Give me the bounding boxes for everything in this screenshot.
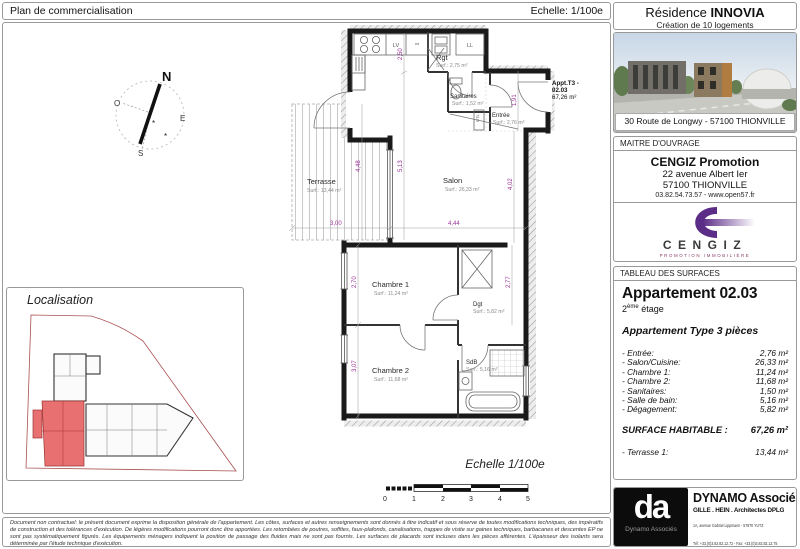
dim-448: 4,48: [356, 160, 362, 172]
scale-bar: Echelle 1/100e 0 1 2 3 4 5: [383, 457, 545, 503]
room-surf-terrasse: Surf.: 13,44 m²: [307, 188, 342, 194]
architect-address: 1A, avenue Gabriel Lippmann - 57970 YUTZ: [693, 523, 763, 529]
dishwasher-label: LV: [393, 43, 400, 49]
surfaces-table-box: TABLEAU DES SURFACES Appartement 02.03 2…: [613, 266, 797, 480]
scale-bar-title: Echelle 1/100e: [465, 457, 545, 471]
compass-n: N: [162, 69, 171, 84]
terrace-label: - Terrasse 1:: [622, 447, 668, 457]
room-label-sdb: SdB: [466, 360, 477, 366]
room-surf-salon: Surf.: 26,33 m²: [445, 187, 480, 193]
apartment-type: Appartement Type 3 pièces: [622, 325, 788, 337]
scale-tick-5: 5: [526, 496, 530, 503]
washer-label: LL: [467, 43, 473, 49]
surface-row-label: - Dégagement:: [622, 405, 677, 414]
maitre-ouvrage-label: MAITRE D'OUVRAGE: [614, 137, 796, 151]
surface-total-label: SURFACE HABITABLE :: [622, 425, 728, 435]
terrace-value: 13,44 m²: [755, 447, 788, 457]
room-label-sanitaires: Sanitaires: [450, 94, 477, 100]
apartment-tag: Appt.T3 - 02.03 67,26 m²: [552, 80, 579, 101]
company-name: CENGIZ Promotion: [616, 155, 794, 169]
legal-disclaimer: Document non contractuel: le présent doc…: [2, 517, 611, 547]
room-surface-list: - Entrée:2,76 m² - Salon/Cuisine:26,33 m…: [622, 349, 788, 415]
surface-total-row: SURFACE HABITABLE : 67,26 m²: [622, 425, 788, 435]
cengiz-logo: CENGIZ PROMOTION IMMOBILIÈRE: [614, 203, 796, 261]
room-surf-dgt: Surf.: 5,82 m²: [473, 309, 505, 315]
compass-o: O: [114, 99, 120, 108]
room-label-rgt: Rgt: [436, 53, 449, 62]
apartment-tag-line1: Appt.T3 -: [552, 80, 579, 87]
room-label-chambre2: Chambre 2: [372, 366, 409, 375]
surface-row-value: 5,82 m²: [760, 405, 788, 414]
cengiz-logo-text: CENGIZ: [663, 238, 747, 252]
floor-ordinal: ème: [627, 304, 639, 310]
architect-box: da Dynamo Associés DYNAMO Associés GILLE…: [613, 487, 797, 547]
residence-subtitle: Création de 10 logements: [614, 20, 796, 30]
surfaces-table-label: TABLEAU DES SURFACES: [614, 267, 796, 281]
residence-photo-box: 30 Route de Longwy - 57100 THIONVILLE: [613, 32, 797, 133]
dim-250: 2,50: [398, 48, 404, 60]
floor-word: étage: [639, 304, 664, 314]
company-contact: 03.82.54.73.57 - www.open57.fr: [616, 192, 794, 199]
room-surf-chambre2: Surf.: 11,68 m²: [374, 377, 408, 383]
apartment-tag-line2: 02.03: [552, 87, 568, 94]
residence-name: Résidence INNOVIA: [614, 5, 796, 20]
scale-tick-1: 1: [412, 496, 416, 503]
architect-phones: Tél: +33.(0)3.82.82.12.72 - Fax: +33.(0)…: [693, 541, 777, 547]
dim-513: 5,13: [398, 160, 404, 172]
apartment-title: Appartement 02.03: [622, 285, 788, 303]
dynamo-logo: da Dynamo Associés: [614, 488, 688, 546]
apartment-tag-line3: 67,26 m²: [552, 94, 576, 101]
compass-star-1: *: [152, 119, 155, 128]
residence-header: Résidence INNOVIA Création de 10 logemen…: [613, 2, 797, 30]
dim-270: 2,70: [352, 276, 358, 288]
architect-name: DYNAMO Associés: [693, 491, 795, 505]
room-label-terrasse: Terrasse: [307, 177, 336, 186]
dim-307: 3,07: [352, 360, 358, 372]
legal-text: Document non contractuel: le présent doc…: [10, 520, 603, 547]
terrace-row: - Terrasse 1: 13,44 m²: [622, 447, 788, 457]
residence-address: 30 Route de Longwy - 57100 THIONVILLE: [615, 113, 795, 131]
dim-277: 2,77: [506, 276, 512, 288]
highlighted-apartment: [33, 401, 84, 466]
compass-e: E: [180, 114, 185, 123]
dim-191: 1,91: [512, 94, 518, 106]
residence-name-prefix: Résidence: [645, 5, 710, 20]
room-surf-entree: Surf.: 2,76 m²: [493, 120, 525, 126]
room-label-chambre1: Chambre 1: [372, 280, 409, 289]
localisation-box: Localisation: [6, 287, 244, 481]
surface-total-value: 67,26 m²: [751, 425, 788, 435]
cengiz-logo-icon: CENGIZ PROMOTION IMMOBILIÈRE: [625, 205, 785, 259]
surface-row: - Dégagement:5,82 m²: [622, 405, 788, 414]
room-label-salon: Salon: [443, 176, 462, 185]
scale-tick-2: 2: [441, 496, 445, 503]
dim-402: 4,02: [508, 178, 514, 190]
company-address-2: 57100 THIONVILLE: [616, 180, 794, 191]
room-surf-sdb: Surf.: 5,16 m²: [466, 367, 498, 373]
page-title: Plan de commercialisation: [10, 5, 133, 17]
compass-s: S: [138, 149, 143, 158]
plan-sheet: { "header": { "title": "Plan de commerci…: [0, 0, 800, 549]
room-surf-chambre1: Surf.: 11,24 m²: [374, 291, 408, 297]
header-bar: Plan de commercialisation Echelle: 1/100…: [2, 2, 611, 20]
gtl-label: GTL: [475, 113, 480, 122]
header-scale: Echelle: 1/100e: [531, 5, 603, 17]
architect-title: GILLE . HEIN . Architectes DPLG: [693, 507, 795, 514]
room-surf-sanitaires: Surf.: 1,52 m²: [452, 101, 484, 107]
surfaces-content: Appartement 02.03 2ème étage Appartement…: [614, 281, 796, 457]
maitre-ouvrage-box: MAITRE D'OUVRAGE CENGIZ Promotion 22 ave…: [613, 136, 797, 262]
room-label-dgt: Dgt: [473, 302, 483, 308]
scale-tick-3: 3: [469, 496, 473, 503]
residence-name-bold: INNOVIA: [710, 5, 764, 20]
dynamo-logo-caption: Dynamo Associés: [614, 526, 688, 533]
compass-rose-icon: N O E S * *: [114, 69, 185, 158]
freezer-stars-label: **: [415, 43, 420, 49]
cengiz-logo-tagline: PROMOTION IMMOBILIÈRE: [660, 253, 751, 258]
site-map: [7, 306, 245, 480]
maitre-ouvrage-company: CENGIZ Promotion 22 avenue Albert Ier 57…: [614, 151, 796, 203]
company-address-1: 22 avenue Albert Ier: [616, 169, 794, 180]
dynamo-logo-initials: da: [614, 489, 688, 525]
scale-tick-0: 0: [383, 496, 387, 503]
scale-tick-4: 4: [498, 496, 502, 503]
compass-star-2: *: [164, 132, 167, 141]
dim-salon-width: 4,44: [448, 221, 460, 227]
architect-info: DYNAMO Associés GILLE . HEIN . Architect…: [688, 488, 795, 546]
apartment-floor: 2ème étage: [622, 304, 788, 314]
room-label-entree: Entrée: [492, 113, 510, 119]
dim-terrace-width: 3,00: [330, 221, 342, 227]
room-surf-rgt: Surf.: 2,75 m²: [436, 63, 468, 69]
localisation-title: Localisation: [27, 293, 93, 307]
